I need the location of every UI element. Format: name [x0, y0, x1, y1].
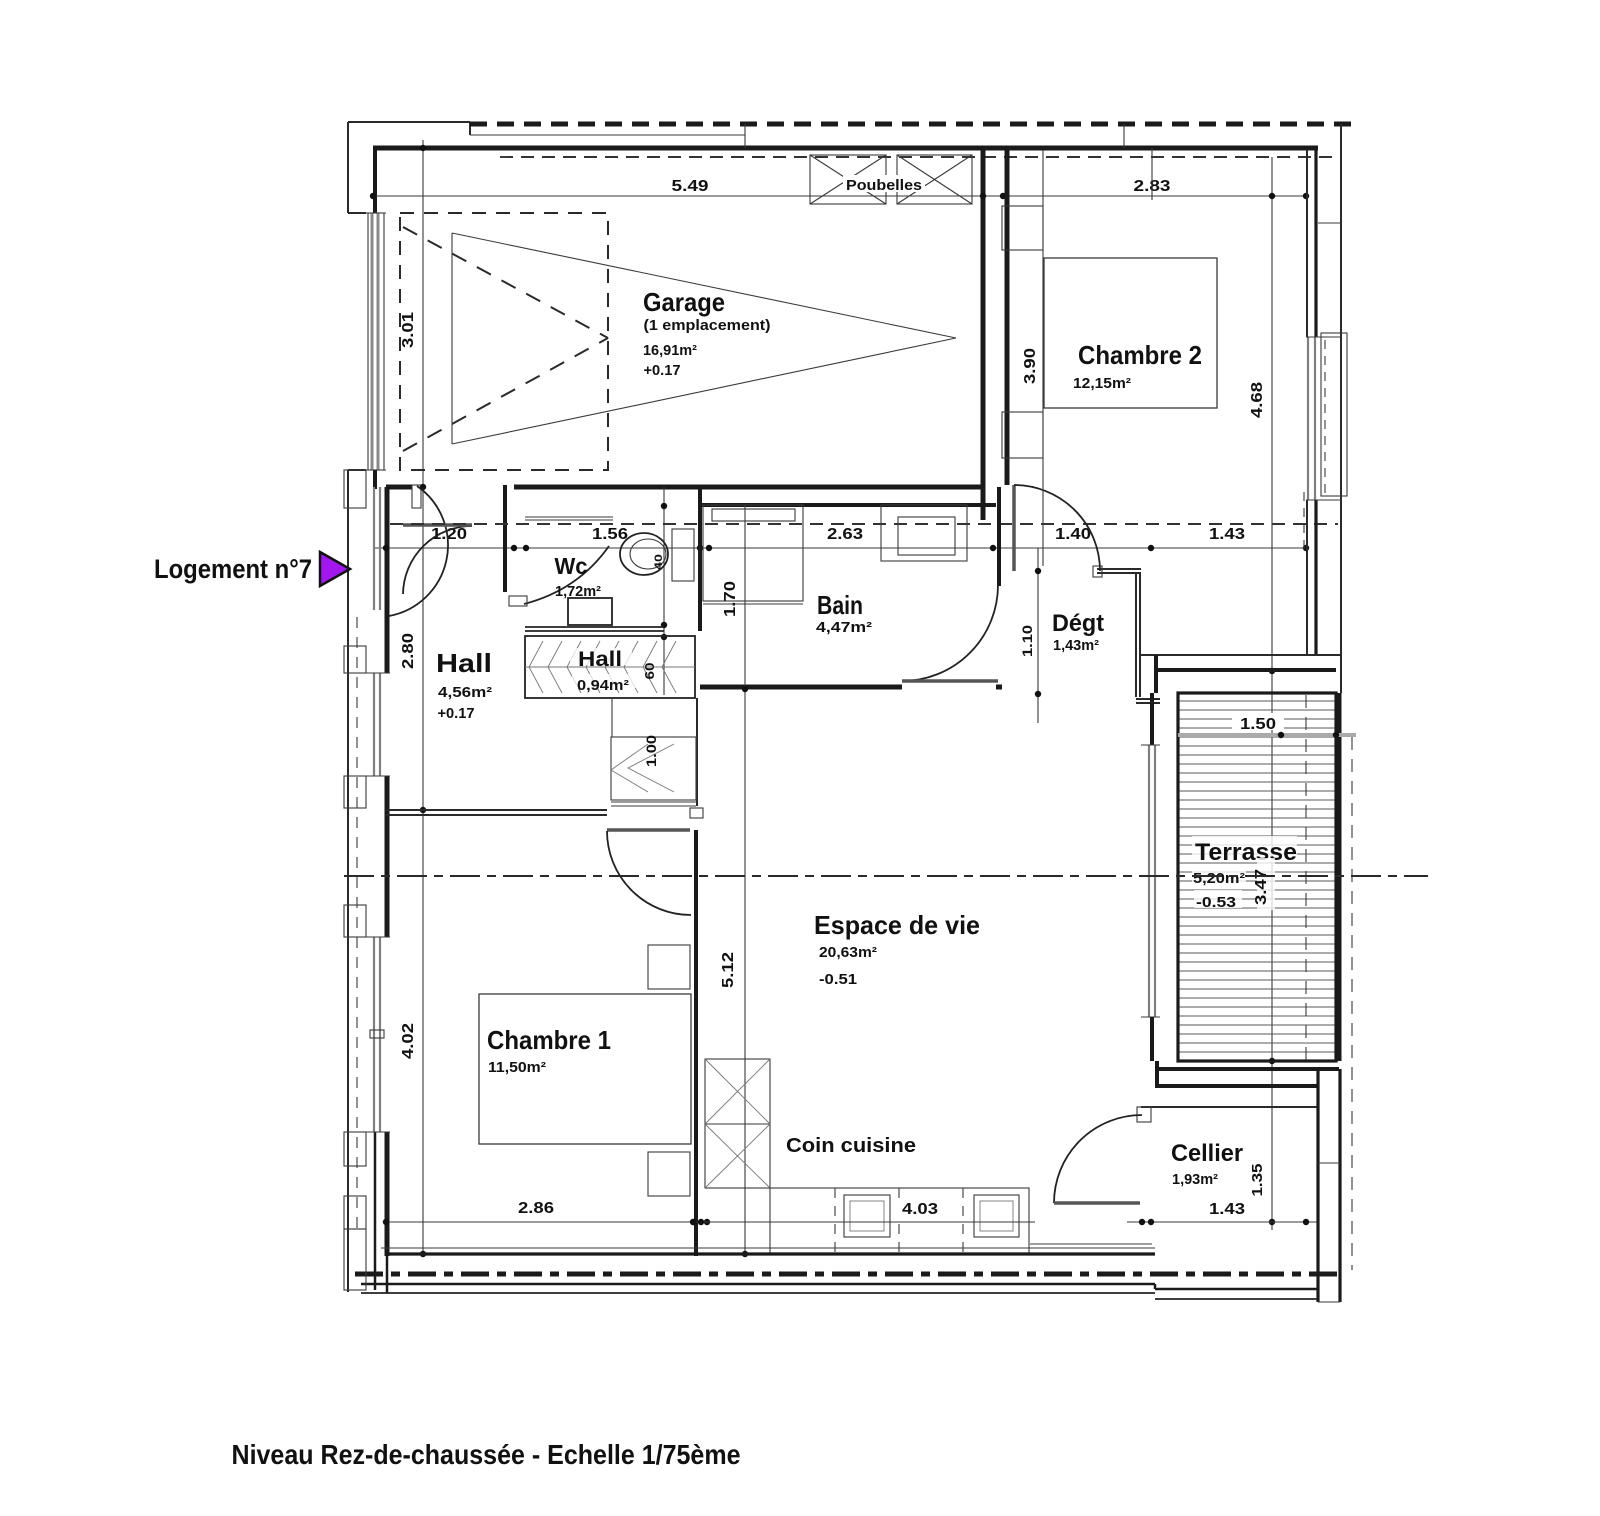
svg-text:1.56: 1.56: [592, 526, 628, 543]
svg-text:3.47: 3.47: [1253, 869, 1270, 905]
svg-text:+0.17: +0.17: [644, 363, 681, 379]
svg-text:4.68: 4.68: [1249, 382, 1266, 418]
svg-text:Hall: Hall: [578, 648, 622, 671]
svg-text:+0.17: +0.17: [438, 706, 475, 722]
svg-text:-0.51: -0.51: [819, 972, 857, 988]
svg-text:16,91m²: 16,91m²: [643, 343, 697, 359]
svg-text:Dégt: Dégt: [1052, 610, 1104, 637]
svg-text:4,56m²: 4,56m²: [438, 685, 492, 701]
svg-text:Hall: Hall: [436, 648, 492, 678]
svg-text:1,43m²: 1,43m²: [1053, 638, 1099, 654]
svg-text:1.20: 1.20: [431, 526, 467, 543]
svg-text:1,93m²: 1,93m²: [1172, 1172, 1218, 1188]
svg-text:2.63: 2.63: [827, 526, 863, 543]
svg-text:1.10: 1.10: [1019, 625, 1035, 657]
svg-text:4.02: 4.02: [400, 1023, 417, 1059]
svg-text:1.70: 1.70: [722, 581, 739, 617]
svg-text:Chambre 2: Chambre 2: [1078, 340, 1202, 370]
svg-text:40: 40: [653, 554, 665, 570]
svg-text:(1 emplacement): (1 emplacement): [644, 318, 771, 334]
svg-text:4.03: 4.03: [902, 1201, 938, 1218]
svg-text:11,50m²: 11,50m²: [488, 1060, 546, 1076]
svg-text:Garage: Garage: [643, 287, 725, 317]
svg-text:1.50: 1.50: [1240, 716, 1276, 733]
svg-text:5.12: 5.12: [720, 952, 737, 988]
svg-text:1.40: 1.40: [1055, 526, 1091, 543]
svg-text:1.35: 1.35: [1250, 1164, 1266, 1197]
svg-text:Logement n°7: Logement n°7: [154, 554, 312, 584]
svg-text:Espace de vie: Espace de vie: [814, 910, 980, 940]
svg-text:Coin cuisine: Coin cuisine: [786, 1135, 916, 1157]
svg-text:2.86: 2.86: [518, 1200, 554, 1217]
svg-text:5,20m²: 5,20m²: [1193, 871, 1245, 887]
svg-text:Terrasse: Terrasse: [1195, 839, 1297, 866]
svg-text:1.00: 1.00: [644, 735, 659, 767]
svg-text:Cellier: Cellier: [1171, 1140, 1243, 1167]
svg-text:5.49: 5.49: [672, 178, 709, 195]
svg-text:60: 60: [643, 662, 657, 679]
svg-text:Poubelles: Poubelles: [846, 177, 922, 194]
svg-text:1,72m²: 1,72m²: [555, 584, 601, 600]
svg-text:Niveau Rez-de-chaussée - Echel: Niveau Rez-de-chaussée - Echelle 1/75ème: [232, 1439, 741, 1470]
svg-text:2.80: 2.80: [400, 633, 417, 669]
svg-text:-0.53: -0.53: [1196, 895, 1236, 911]
svg-text:Wc: Wc: [555, 553, 588, 579]
svg-text:4,47m²: 4,47m²: [816, 620, 872, 636]
svg-text:1.43: 1.43: [1209, 1201, 1245, 1218]
svg-text:3.90: 3.90: [1022, 348, 1039, 384]
svg-text:1.43: 1.43: [1209, 526, 1245, 543]
svg-text:12,15m²: 12,15m²: [1073, 376, 1131, 392]
svg-text:Bain: Bain: [817, 590, 863, 620]
svg-text:0,94m²: 0,94m²: [577, 678, 629, 694]
svg-text:Chambre 1: Chambre 1: [487, 1025, 611, 1055]
svg-text:3.01: 3.01: [400, 312, 417, 348]
svg-text:20,63m²: 20,63m²: [819, 945, 877, 961]
